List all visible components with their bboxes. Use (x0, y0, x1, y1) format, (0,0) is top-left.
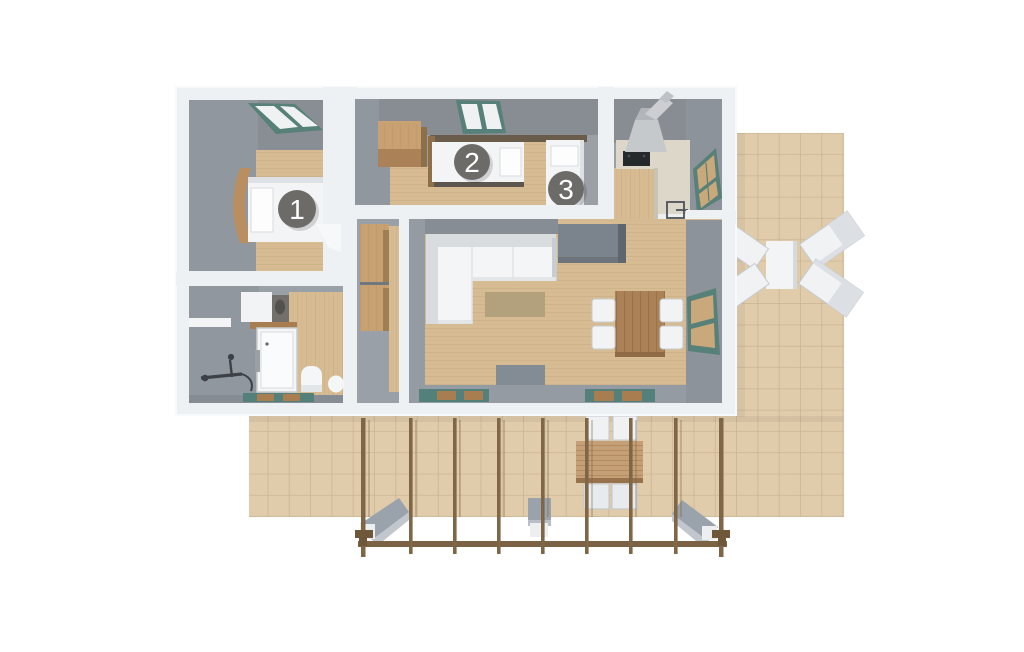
svg-text:1: 1 (289, 194, 305, 225)
svg-text:2: 2 (464, 147, 480, 178)
svg-text:3: 3 (558, 174, 574, 205)
